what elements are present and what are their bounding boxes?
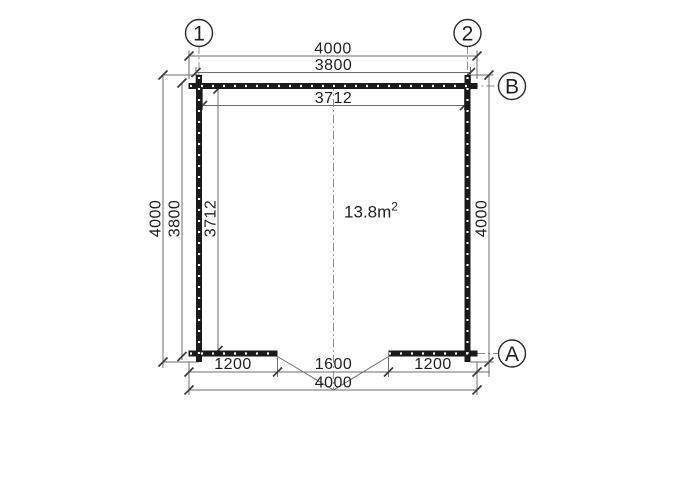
- wall-right: [465, 75, 471, 362]
- grid-markers: 1 2 B A: [186, 20, 526, 368]
- floor-area-superscript: 2: [391, 200, 398, 214]
- dim-left-shell-label: 3800: [167, 200, 184, 238]
- dim-top-overall-label: 4000: [314, 41, 352, 58]
- floor-plan-canvas: 1 2 B A 4000 3800 3712 4000 3800 3712 40…: [0, 0, 700, 478]
- dim-bottom-opening-label: 1600: [315, 356, 353, 373]
- floor-plan-drawing: 1 2 B A 4000 3800 3712 4000 3800 3712 40…: [0, 0, 700, 478]
- wall-left: [196, 75, 202, 362]
- dim-left-overall-label: 4000: [148, 200, 165, 238]
- dim-top-interior-label: 3712: [315, 90, 353, 107]
- dim-top-shell-label: 3800: [315, 57, 353, 74]
- floor-area-value: 13.8m: [344, 203, 391, 222]
- dim-right-overall-label: 4000: [474, 200, 491, 238]
- grid-label-a: A: [505, 343, 519, 366]
- dim-left-interior-label: 3712: [203, 200, 220, 238]
- grid-label-b: B: [505, 76, 519, 99]
- floor-area-label: 13.8m2: [344, 200, 398, 222]
- dim-bottom-right-segment-label: 1200: [414, 356, 452, 373]
- grid-label-1: 1: [193, 23, 205, 46]
- grid-label-2: 2: [462, 23, 474, 46]
- dim-bottom-overall-label: 4000: [315, 375, 353, 392]
- dim-bottom-left-segment-label: 1200: [214, 356, 252, 373]
